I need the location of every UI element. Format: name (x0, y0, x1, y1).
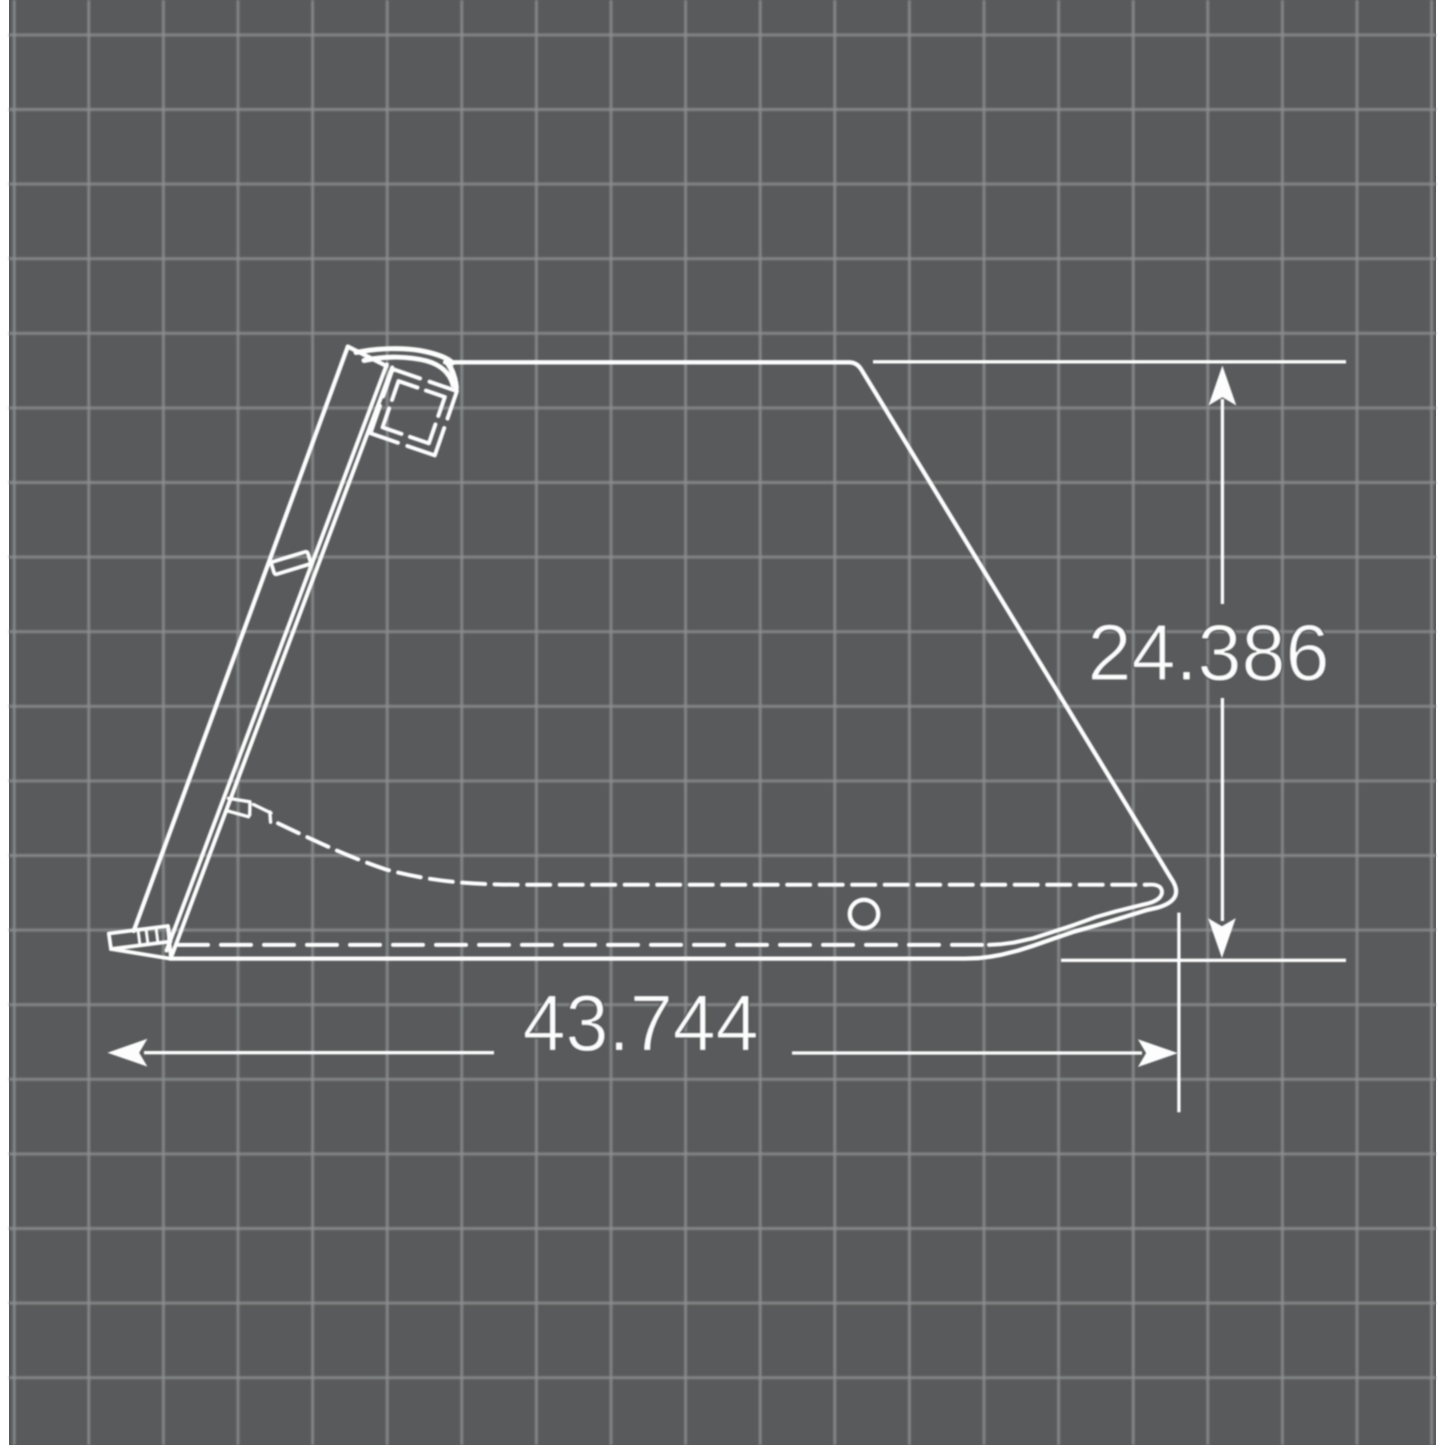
svg-text:24.386: 24.386 (1088, 608, 1330, 697)
svg-text:43.744: 43.744 (523, 979, 759, 1068)
